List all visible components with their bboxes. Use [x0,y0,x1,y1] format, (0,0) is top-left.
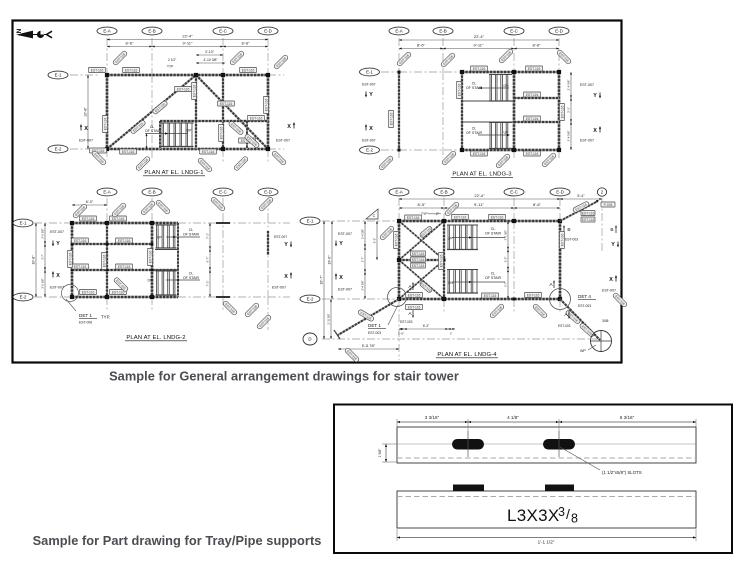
svg-text:8'-11 7/8": 8'-11 7/8" [362,344,375,348]
svg-text:EST-116: EST-116 [408,293,421,297]
svg-text:EST-116: EST-116 [250,116,263,120]
svg-text:2 1/2": 2 1/2" [168,58,176,62]
svg-text:EST-007: EST-007 [602,289,616,293]
svg-text:X: X [287,124,291,130]
svg-text:E-C: E-C [510,29,518,34]
svg-text:P-043: P-043 [604,203,613,207]
svg-text:TYP: TYP [421,212,428,216]
svg-text:EST-116: EST-116 [82,290,95,294]
svg-text:DN: DN [504,84,509,88]
svg-text:8'-6": 8'-6" [242,41,251,46]
svg-text:X: X [609,277,613,283]
svg-text:EST-007: EST-007 [274,235,287,239]
svg-text:Y: Y [56,241,60,247]
svg-text:TYP: TYP [167,65,173,69]
svg-text:OF STAIR: OF STAIR [466,131,483,135]
svg-text:UP: UP [157,236,162,240]
svg-text:3'-3": 3'-3" [567,107,571,113]
svg-text:DET 1: DET 1 [368,323,381,328]
svg-text:E-B: E-B [440,190,447,195]
svg-text:CL: CL [472,127,477,131]
svg-text:EST-116: EST-116 [582,211,595,215]
svg-text:3'-6 5/8": 3'-6 5/8" [41,228,45,238]
svg-text:EST-116: EST-116 [102,255,106,268]
svg-text:CL: CL [189,228,194,232]
svg-text:9'-11": 9'-11" [474,43,484,48]
svg-text:E-D: E-D [555,29,563,34]
svg-text:22'-4": 22'-4" [474,193,485,198]
svg-text:EST-003: EST-003 [565,238,578,242]
svg-text:B: B [567,227,570,233]
svg-text:8'-6": 8'-6" [126,41,135,46]
svg-text:UP: UP [448,237,453,241]
svg-text:X: X [284,274,288,280]
svg-text:EST-116: EST-116 [91,68,104,72]
svg-text:EST-116: EST-116 [408,305,421,309]
svg-text:E-C: E-C [510,190,518,195]
svg-text:EST-116: EST-116 [491,215,504,219]
svg-text:E-2: E-2 [55,147,62,152]
svg-text:Y: Y [284,242,288,248]
svg-text:3'-7": 3'-7" [361,257,365,263]
svg-text:E-2: E-2 [20,295,27,300]
svg-text:2'-5 3/8": 2'-5 3/8" [504,230,508,240]
svg-text:EST-116: EST-116 [473,67,486,71]
svg-text:L3X3X: L3X3X [507,506,560,525]
svg-text:EST-007: EST-007 [338,288,352,292]
svg-text:1 5/8": 1 5/8" [378,448,382,458]
svg-text:3'-4 5/8": 3'-4 5/8" [361,229,365,239]
svg-text:5'-11 3/8": 5'-11 3/8" [327,314,331,325]
svg-text:DET 4: DET 4 [578,294,591,299]
svg-text:3'-4 5/8": 3'-4 5/8" [361,280,365,290]
svg-text:7'-3": 7'-3" [206,281,210,287]
svg-text:TYP.: TYP. [101,315,110,320]
svg-text:6'-0": 6'-0" [86,200,94,204]
svg-text:X: X [593,128,597,134]
svg-text:EST-116: EST-116 [242,68,255,72]
svg-text:3'-4 5/8": 3'-4 5/8" [567,80,571,91]
svg-text:EST-116: EST-116 [526,117,539,121]
svg-text:EST-116: EST-116 [82,217,95,221]
svg-text:DN: DN [448,281,453,285]
svg-text:EST-116: EST-116 [473,152,486,156]
svg-text:22'-4": 22'-4" [182,34,193,39]
svg-text:E-D: E-D [264,190,272,195]
svg-text:(1 1/2"x5/8") SLOTS: (1 1/2"x5/8") SLOTS [602,470,642,475]
svg-text:EST-007: EST-007 [580,139,594,143]
svg-text:8'-6": 8'-6" [417,43,426,48]
svg-text:EST-116: EST-116 [103,118,107,131]
svg-text:E-D: E-D [264,29,272,34]
svg-text:C: C [373,214,376,218]
svg-text:EST-116: EST-116 [560,106,564,119]
svg-text:EST-007: EST-007 [276,139,290,143]
svg-text:EST-116: EST-116 [148,251,152,264]
svg-text:OF STAIR: OF STAIR [485,232,502,236]
svg-text:OF STAIR: OF STAIR [466,86,483,90]
svg-text:3: 3 [558,505,565,519]
svg-text:EST-116: EST-116 [202,150,215,154]
svg-text:EST-116: EST-116 [439,255,443,268]
svg-text:EST-007: EST-007 [338,232,352,236]
svg-text:3 3/16": 3 3/16" [425,415,440,420]
svg-text:EST-116: EST-116 [118,265,131,269]
svg-text:9'-11": 9'-11" [474,202,484,207]
svg-text:6'-7": 6'-7" [206,257,210,263]
svg-text:Sample for Part drawing for Tr: Sample for Part drawing for Tray/Pipe su… [33,533,322,548]
svg-text:EST-116: EST-116 [454,215,467,219]
svg-text:UP: UP [504,131,509,135]
svg-text:EST-116: EST-116 [412,258,425,262]
svg-text:4'-10 3/8": 4'-10 3/8" [203,58,218,62]
svg-text:X: X [56,273,60,279]
svg-text:Y: Y [369,92,373,98]
svg-text:Y: Y [593,93,597,99]
svg-text:CL: CL [491,272,496,276]
svg-text:E-2: E-2 [307,297,314,302]
svg-text:EST-116: EST-116 [412,264,425,268]
svg-text:EST-116: EST-116 [125,68,138,72]
svg-text:3'-6 5/8": 3'-6 5/8" [41,278,45,288]
svg-text:EST-116: EST-116 [527,293,540,297]
svg-text:16'-7": 16'-7" [320,275,324,285]
svg-text:EST-116: EST-116 [220,102,233,106]
svg-text:10'-8": 10'-8" [84,107,88,117]
svg-text:EST-007: EST-007 [362,83,376,87]
svg-text:1'-1 1/2": 1'-1 1/2" [538,540,555,545]
svg-text:EST-006: EST-006 [79,321,92,325]
svg-text:B: B [610,227,613,233]
svg-text:EST-116: EST-116 [122,150,135,154]
svg-text:EST-116: EST-116 [528,67,541,71]
svg-text:EST-007: EST-007 [362,139,376,143]
svg-text:/: / [566,506,570,522]
svg-text:EST-116: EST-116 [177,87,190,91]
svg-text:1'-0": 1'-0" [398,332,404,336]
svg-text:5'-4": 5'-4" [577,194,585,198]
svg-text:6'-2": 6'-2" [504,257,508,263]
svg-text:DN: DN [148,279,153,283]
svg-text:EST-116: EST-116 [407,216,420,220]
svg-text:EST-116: EST-116 [112,217,125,221]
svg-text:EST-007: EST-007 [50,230,64,234]
svg-text:5'-3": 5'-3" [373,238,377,244]
svg-text:E-1: E-1 [307,219,314,224]
svg-text:PLAN AT EL. LNDG-1: PLAN AT EL. LNDG-1 [144,170,203,176]
svg-text:6'-3": 6'-3" [423,324,429,328]
svg-text:EST-007: EST-007 [50,286,64,290]
svg-text:EST-116: EST-116 [412,252,425,256]
svg-text:EST-116: EST-116 [389,113,393,126]
svg-text:7'-3": 7'-3" [206,233,210,239]
svg-text:EST-003: EST-003 [400,320,413,324]
svg-text:EST-116: EST-116 [582,218,595,222]
svg-text:OF STAIR: OF STAIR [183,233,200,237]
svg-text:PLAN AT EL. LNDG-2: PLAN AT EL. LNDG-2 [126,335,185,341]
svg-text:D: D [308,337,311,342]
svg-text:OF STAIR: OF STAIR [485,276,502,280]
svg-text:WP: WP [580,349,586,353]
svg-text:EST-003: EST-003 [558,324,571,328]
svg-text:E-A: E-A [103,29,110,34]
svg-text:E-1: E-1 [366,70,373,75]
svg-text:EST-116: EST-116 [112,290,125,294]
svg-text:EST-116: EST-116 [394,234,398,247]
svg-text:8'-6": 8'-6" [533,43,542,48]
svg-text:CL: CL [189,272,194,276]
svg-text:PLAN AT EL. LNDG-3: PLAN AT EL. LNDG-3 [452,172,512,178]
svg-text:3'-7": 3'-7" [41,254,45,260]
svg-text:EST-003: EST-003 [578,304,591,308]
svg-text:EST-116: EST-116 [74,265,87,269]
svg-text:22'-4": 22'-4" [474,34,485,39]
svg-text:OF STAIR: OF STAIR [145,129,162,133]
svg-text:EST-007: EST-007 [79,139,93,143]
svg-text:EST-116: EST-116 [264,99,268,112]
svg-text:OF STAIR: OF STAIR [183,276,200,280]
svg-text:3'-4 5/8": 3'-4 5/8" [567,131,571,142]
svg-text:30Ø: 30Ø [602,319,609,323]
svg-text:8: 8 [571,512,578,526]
svg-text:EST-116: EST-116 [68,253,72,266]
svg-text:19'-6": 19'-6" [328,255,332,265]
svg-text:EST-116: EST-116 [526,152,539,156]
svg-text:X: X [84,126,88,132]
svg-text:4 1/8": 4 1/8" [507,415,519,420]
svg-text:Y: Y [611,242,615,248]
svg-text:Sample for General arrangement: Sample for General arrangement drawings … [109,369,459,384]
svg-text:EST-116: EST-116 [219,127,223,140]
svg-text:E-C: E-C [219,190,227,195]
svg-text:E-1: E-1 [20,221,27,226]
svg-text:EST-116: EST-116 [192,85,196,98]
svg-text:E-D: E-D [556,190,564,195]
svg-text:E-A: E-A [395,29,402,34]
svg-text:2'-7": 2'-7" [504,281,508,287]
svg-text:UP: UP [187,129,193,133]
svg-text:E-B: E-B [148,29,155,34]
svg-text:EST-116: EST-116 [457,84,461,97]
svg-text:DET 1: DET 1 [79,313,92,318]
svg-text:CL: CL [472,82,477,86]
svg-text:6 3/16": 6 3/16" [620,415,635,420]
svg-text:E-1: E-1 [55,73,62,78]
svg-text:10'-8": 10'-8" [32,255,36,265]
svg-text:E-B: E-B [148,190,155,195]
svg-text:EST-116: EST-116 [526,93,539,97]
svg-text:X: X [339,275,343,281]
svg-text:CL: CL [491,227,496,231]
svg-text:8'-5": 8'-5" [418,202,427,207]
svg-text:EST-116: EST-116 [74,239,87,243]
svg-text:EST-116: EST-116 [118,239,131,243]
svg-text:9'-11": 9'-11" [183,41,193,46]
svg-text:E-C: E-C [219,29,227,34]
svg-text:8'-6": 8'-6" [533,202,542,207]
svg-text:EST-116: EST-116 [560,234,564,247]
svg-text:E-A: E-A [103,190,110,195]
svg-text:E-B: E-B [439,29,446,34]
svg-text:PLAN AT EL. LNDG-4: PLAN AT EL. LNDG-4 [437,352,497,358]
svg-text:EST-116: EST-116 [484,294,497,298]
svg-text:3'-10": 3'-10" [205,50,215,54]
svg-text:E-A: E-A [395,190,402,195]
svg-text:X: X [369,126,373,132]
svg-text:Y: Y [339,241,343,247]
svg-text:EST-007: EST-007 [272,286,286,290]
svg-text:EST-003: EST-003 [368,331,381,335]
svg-text:1": 1" [450,332,453,336]
svg-text:N: N [16,28,23,33]
svg-text:EST-007: EST-007 [580,83,594,87]
svg-text:E-2: E-2 [366,148,373,153]
